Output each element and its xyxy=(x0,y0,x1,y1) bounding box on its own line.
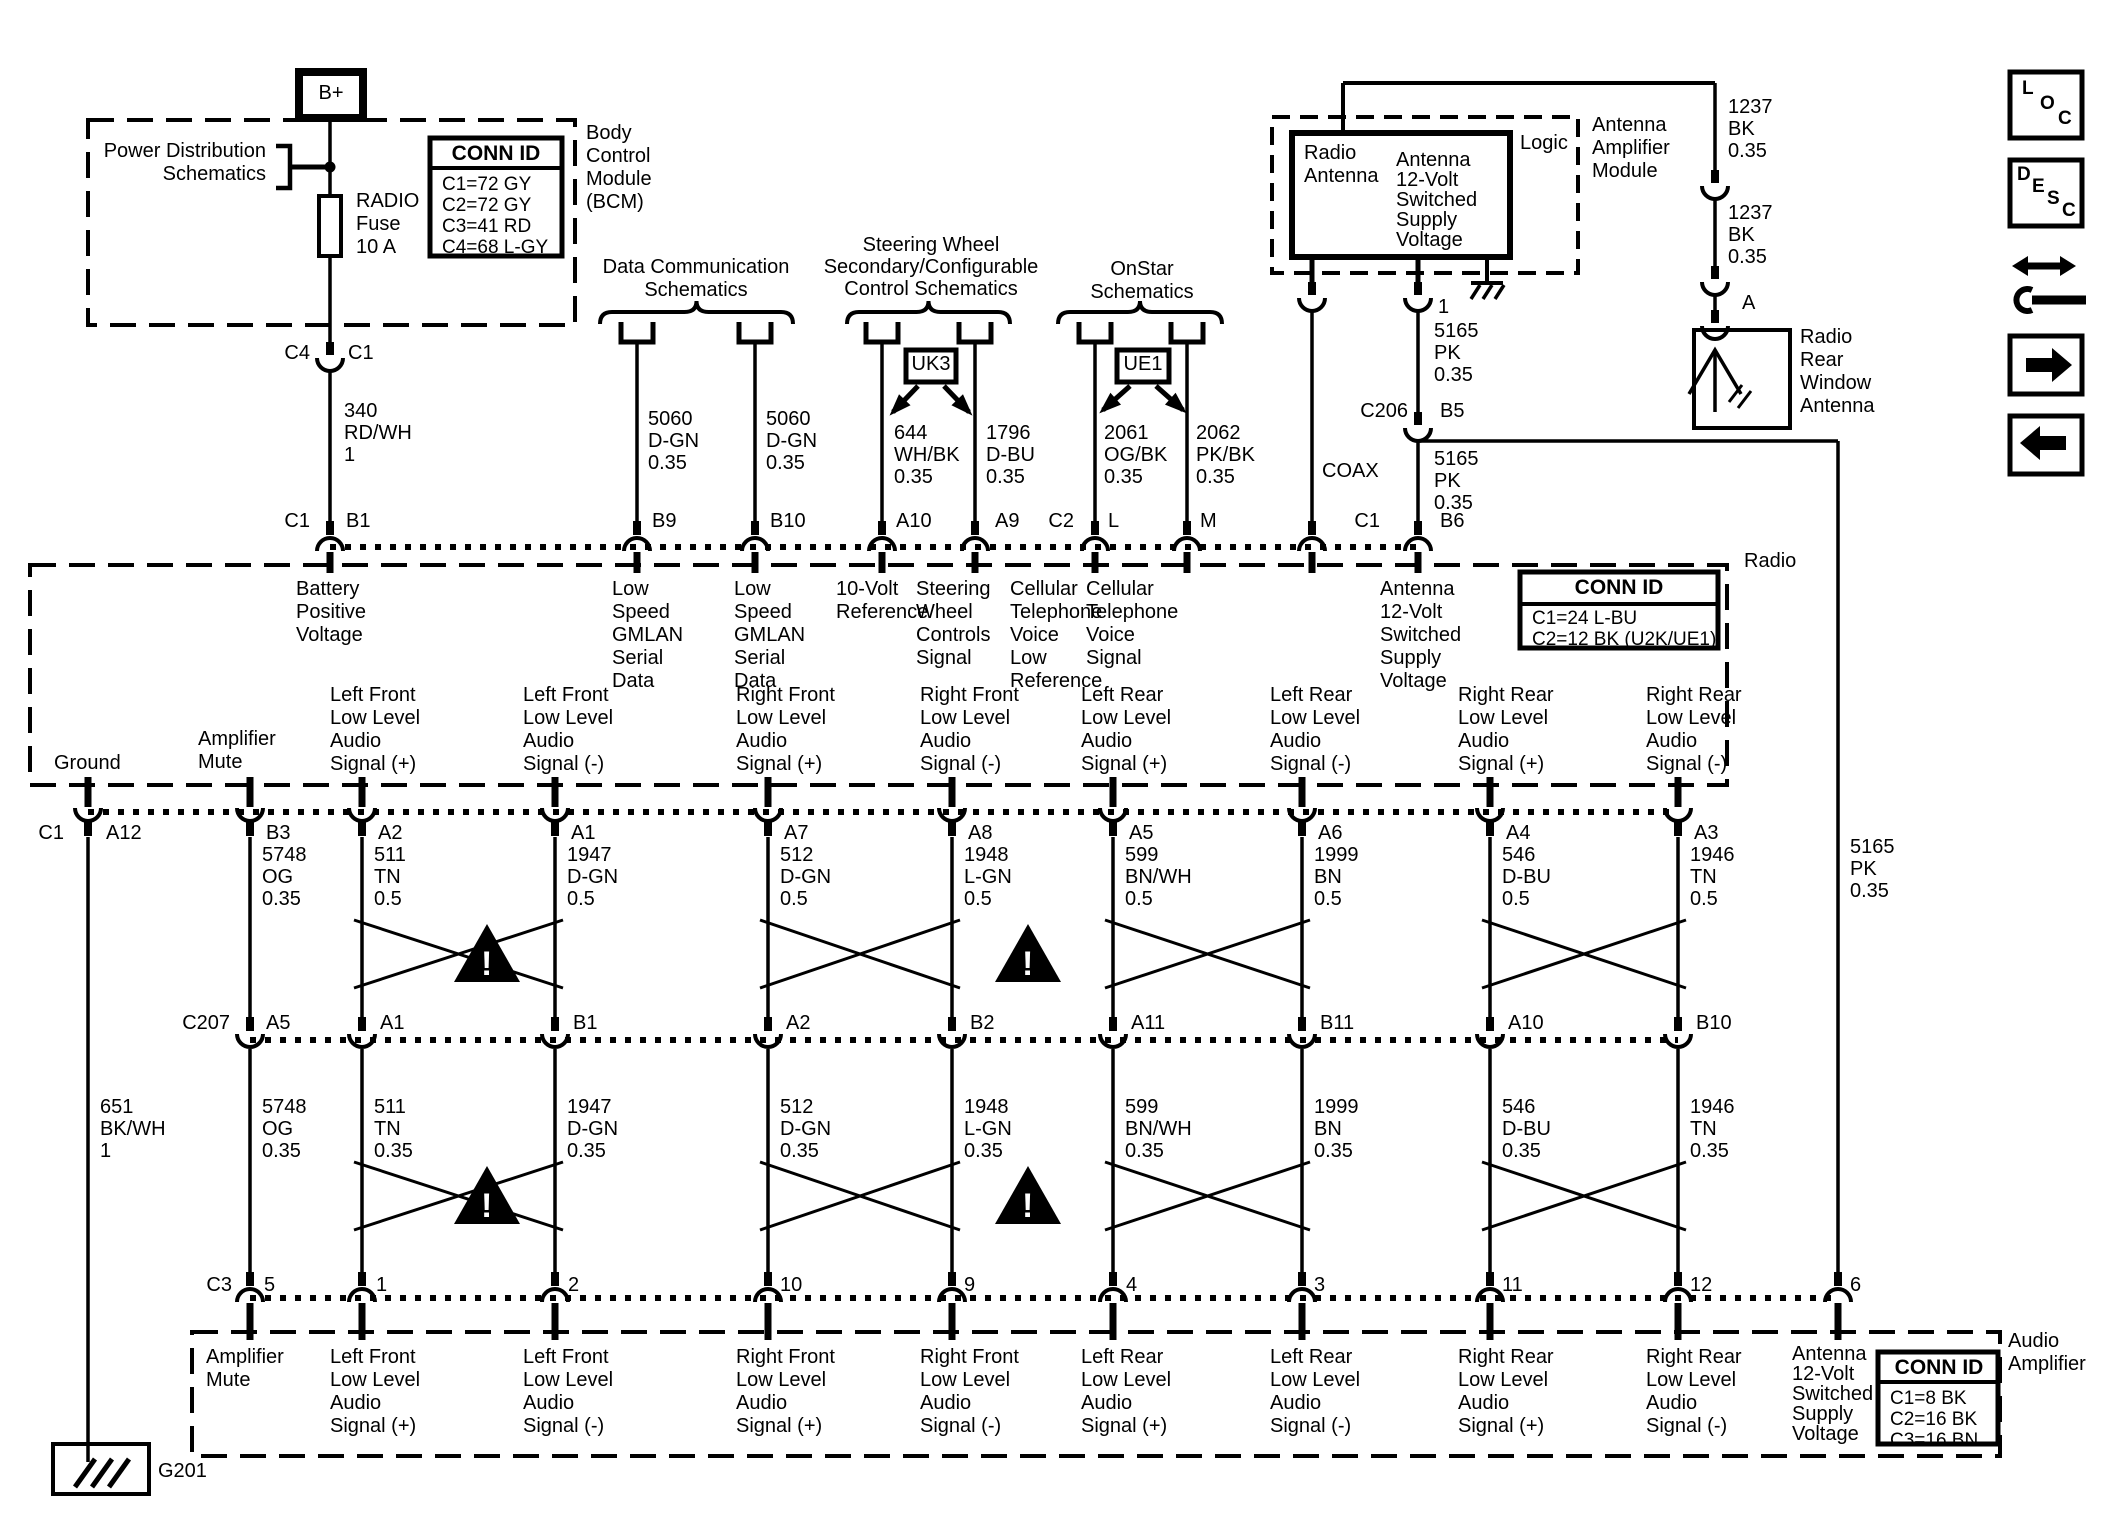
signal-label: Right Rear Low Level Audio Signal (-) xyxy=(1646,1346,1742,1438)
signal-label: Left Rear Low Level Audio Signal (-) xyxy=(1270,684,1360,776)
pin-label-b5: B5 xyxy=(1440,400,1464,423)
amp-conn-id-rows: C1=8 BK C2=16 BK C3=16 BN xyxy=(1890,1388,1978,1451)
wire-label-5165-right: 5165 PK 0.35 xyxy=(1850,836,1895,902)
rear-window-antenna-label: Radio Rear Window Antenna xyxy=(1800,326,1875,418)
pin-label: B11 xyxy=(1320,1012,1354,1035)
pin-label: 3 xyxy=(1314,1274,1325,1297)
signal-label: Amplifier Mute xyxy=(198,728,276,774)
pin-label: A8 xyxy=(968,822,992,845)
wire-label: 512 D-GN 0.5 xyxy=(780,844,831,910)
wire-label-5060-b: 5060 D-GN 0.35 xyxy=(766,408,817,474)
wire-label-1796: 1796 D-BU 0.35 xyxy=(986,422,1035,488)
radio-antenna-label: Radio Antenna xyxy=(1304,142,1379,188)
pin-label: A12 xyxy=(106,822,142,845)
wire-label-1237-a: 1237 BK 0.35 xyxy=(1728,96,1773,162)
signal-label: Left Front Low Level Audio Signal (+) xyxy=(330,684,420,776)
signal-label: Steering Wheel Controls Signal xyxy=(916,578,991,670)
loc-icon: O xyxy=(2040,93,2055,115)
wire-label: 1947 D-GN 0.35 xyxy=(567,1096,618,1162)
pin-label: B1 xyxy=(346,510,370,533)
pin-label: C1 xyxy=(266,510,310,533)
pin-label: B6 xyxy=(1440,510,1464,533)
pin-label: L xyxy=(1108,510,1119,533)
warning-triangle-icon: ! xyxy=(454,1166,520,1224)
signal-label: Left Rear Low Level Audio Signal (+) xyxy=(1081,1346,1171,1438)
pin-label: C1 xyxy=(1336,510,1380,533)
wire-label: 1946 TN 0.35 xyxy=(1690,1096,1735,1162)
wiring-diagram: B+ Power Distribution Schematics RADIO F… xyxy=(0,0,2123,1521)
wire-label-1237-b: 1237 BK 0.35 xyxy=(1728,202,1773,268)
wire-label: 511 TN 0.35 xyxy=(374,1096,413,1162)
pin-label-1: 1 xyxy=(1438,296,1449,319)
pin-label: B10 xyxy=(770,510,806,533)
connector-label-c206: C206 xyxy=(1330,400,1408,423)
signal-label: Right Front Low Level Audio Signal (+) xyxy=(736,684,835,776)
wire-label: 1948 L-GN 0.35 xyxy=(964,1096,1012,1162)
wire-label: 599 BN/WH 0.35 xyxy=(1125,1096,1192,1162)
antenna-amplifier-module-label: Antenna Amplifier Module xyxy=(1592,114,1670,183)
wire-label-340: 340 RD/WH 1 xyxy=(344,400,412,466)
wire-label: 1946 TN 0.5 xyxy=(1690,844,1735,910)
pin-label: B2 xyxy=(970,1012,994,1035)
wire-label-5165-a: 5165 PK 0.35 xyxy=(1434,320,1479,386)
pin-label-a: A xyxy=(1742,292,1755,315)
amp-conn-id-title: CONN ID xyxy=(1880,1356,1998,1379)
pin-label: B10 xyxy=(1696,1012,1732,1035)
wire-label-2061: 2061 OG/BK 0.35 xyxy=(1104,422,1167,488)
bcm-conn-id-title: CONN ID xyxy=(430,142,562,165)
wire-label: 599 BN/WH 0.5 xyxy=(1125,844,1192,910)
loc-icon: L xyxy=(2022,78,2034,100)
signal-label: Left Rear Low Level Audio Signal (-) xyxy=(1270,1346,1360,1438)
connector-label-c207: C207 xyxy=(150,1012,230,1035)
wire-label: 1999 BN 0.5 xyxy=(1314,844,1359,910)
pin-label: A11 xyxy=(1131,1012,1165,1035)
pin-label: 5 xyxy=(264,1274,275,1297)
warning-triangle-icon: ! xyxy=(454,924,520,982)
wire-label: 512 D-GN 0.35 xyxy=(780,1096,831,1162)
wire-label: 546 D-BU 0.35 xyxy=(1502,1096,1551,1162)
coax-label: COAX xyxy=(1322,460,1379,483)
pin-label: A9 xyxy=(995,510,1019,533)
signal-label: Right Front Low Level Audio Signal (-) xyxy=(920,1346,1019,1438)
b-plus-terminal: B+ xyxy=(299,82,363,105)
pin-label: A10 xyxy=(896,510,932,533)
signal-label: Amplifier Mute xyxy=(206,1346,284,1392)
signal-label: Right Rear Low Level Audio Signal (+) xyxy=(1458,1346,1554,1438)
signal-label: Right Front Low Level Audio Signal (-) xyxy=(920,684,1019,776)
warning-triangle-icon: ! xyxy=(995,924,1061,982)
signal-label: Left Front Low Level Audio Signal (-) xyxy=(523,684,613,776)
bcm-conn-id-rows: C1=72 GY C2=72 GY C3=41 RD C4=68 L-GY xyxy=(442,174,548,258)
pin-label-c4: C4 xyxy=(266,342,310,365)
wire-label-5060-a: 5060 D-GN 0.35 xyxy=(648,408,699,474)
wiring-layer xyxy=(0,0,2123,1521)
signal-label: Left Front Low Level Audio Signal (+) xyxy=(330,1346,420,1438)
signal-label: 10-Volt Reference xyxy=(836,578,928,624)
wire-label-644: 644 WH/BK 0.35 xyxy=(894,422,960,488)
warning-triangle-icon: ! xyxy=(995,1166,1061,1224)
signal-label: Left Rear Low Level Audio Signal (+) xyxy=(1081,684,1171,776)
pin-label: B1 xyxy=(573,1012,597,1035)
wire-label: 1947 D-GN 0.5 xyxy=(567,844,618,910)
signal-label: Antenna 12-Volt Switched Supply Voltage xyxy=(1792,1344,1873,1444)
wire-label-651: 651 BK/WH 1 xyxy=(100,1096,166,1162)
wire-label: 1948 L-GN 0.5 xyxy=(964,844,1012,910)
pin-label: C2 xyxy=(1030,510,1074,533)
pin-label: A1 xyxy=(380,1012,404,1035)
pin-label: A3 xyxy=(1694,822,1718,845)
fuse-label: RADIO Fuse 10 A xyxy=(356,190,419,259)
pin-label: A2 xyxy=(378,822,402,845)
pin-label: 12 xyxy=(1690,1274,1712,1297)
pin-label: 1 xyxy=(376,1274,387,1297)
pin-label: 6 xyxy=(1850,1274,1861,1297)
bcm-label: Body Control Module (BCM) xyxy=(586,122,652,214)
ground-label-g201: G201 xyxy=(158,1460,207,1483)
pin-label: M xyxy=(1200,510,1217,533)
wire-label: 5748 OG 0.35 xyxy=(262,1096,307,1162)
wire-label: 1999 BN 0.35 xyxy=(1314,1096,1359,1162)
wire-label: 5748 OG 0.35 xyxy=(262,844,307,910)
radio-conn-id-rows: C1=24 L-BU C2=12 BK (U2K/UE1) xyxy=(1532,608,1716,650)
pin-label: 10 xyxy=(780,1274,802,1297)
pin-label: A10 xyxy=(1508,1012,1544,1035)
audio-amplifier-label: Audio Amplifier xyxy=(2008,1330,2086,1376)
wire-label: 511 TN 0.5 xyxy=(374,844,406,910)
signal-label: Low Speed GMLAN Serial Data xyxy=(734,578,805,693)
pin-label: 4 xyxy=(1126,1274,1137,1297)
signal-label: Cellular Telephone Voice Signal xyxy=(1086,578,1178,670)
desc-icon: S xyxy=(2047,188,2060,210)
onstar-ref: OnStar Schematics xyxy=(1046,258,1238,304)
antenna-supply-signal: Antenna 12-Volt Switched Supply Voltage xyxy=(1396,150,1477,250)
signal-label: Right Front Low Level Audio Signal (+) xyxy=(736,1346,835,1438)
steering-ref: Steering Wheel Secondary/Configurable Co… xyxy=(818,234,1044,300)
uk3-tag: UK3 xyxy=(906,353,956,376)
signal-label: Low Speed GMLAN Serial Data xyxy=(612,578,683,693)
radio-label: Radio xyxy=(1744,550,1796,573)
loc-icon: C xyxy=(2058,108,2072,130)
pin-label: 11 xyxy=(1502,1274,1523,1297)
pin-label: A7 xyxy=(784,822,808,845)
pin-label: C1 xyxy=(20,822,64,845)
power-distribution-ref: Power Distribution Schematics xyxy=(98,140,266,186)
signal-label: Antenna 12-Volt Switched Supply Voltage xyxy=(1380,578,1461,693)
logic-label: Logic xyxy=(1520,132,1568,155)
pin-label: 2 xyxy=(568,1274,579,1297)
signal-label: Left Front Low Level Audio Signal (-) xyxy=(523,1346,613,1438)
signal-label: Ground xyxy=(54,752,121,775)
signal-label: Right Rear Low Level Audio Signal (-) xyxy=(1646,684,1742,776)
pin-label: A1 xyxy=(571,822,595,845)
signal-label: Right Rear Low Level Audio Signal (+) xyxy=(1458,684,1554,776)
signal-label: Battery Positive Voltage xyxy=(296,578,366,647)
ue1-tag: UE1 xyxy=(1117,353,1169,376)
pin-label: A2 xyxy=(786,1012,810,1035)
pin-label: 9 xyxy=(964,1274,975,1297)
wire-label: 546 D-BU 0.5 xyxy=(1502,844,1551,910)
pin-label: A6 xyxy=(1318,822,1342,845)
desc-icon: D xyxy=(2017,164,2031,186)
pin-label: B9 xyxy=(652,510,676,533)
pin-label-c1: C1 xyxy=(348,342,374,365)
radio-conn-id-title: CONN ID xyxy=(1520,576,1718,599)
pin-label: C3 xyxy=(188,1274,232,1297)
wire-label-2062: 2062 PK/BK 0.35 xyxy=(1196,422,1255,488)
data-comm-ref: Data Communication Schematics xyxy=(596,256,796,302)
wire-label-5165-b: 5165 PK 0.35 xyxy=(1434,448,1479,514)
pin-label: A5 xyxy=(266,1012,290,1035)
pin-label: A4 xyxy=(1506,822,1530,845)
pin-label: B3 xyxy=(266,822,290,845)
desc-icon: C xyxy=(2062,200,2076,222)
desc-icon: E xyxy=(2032,176,2045,198)
pin-label: A5 xyxy=(1129,822,1153,845)
